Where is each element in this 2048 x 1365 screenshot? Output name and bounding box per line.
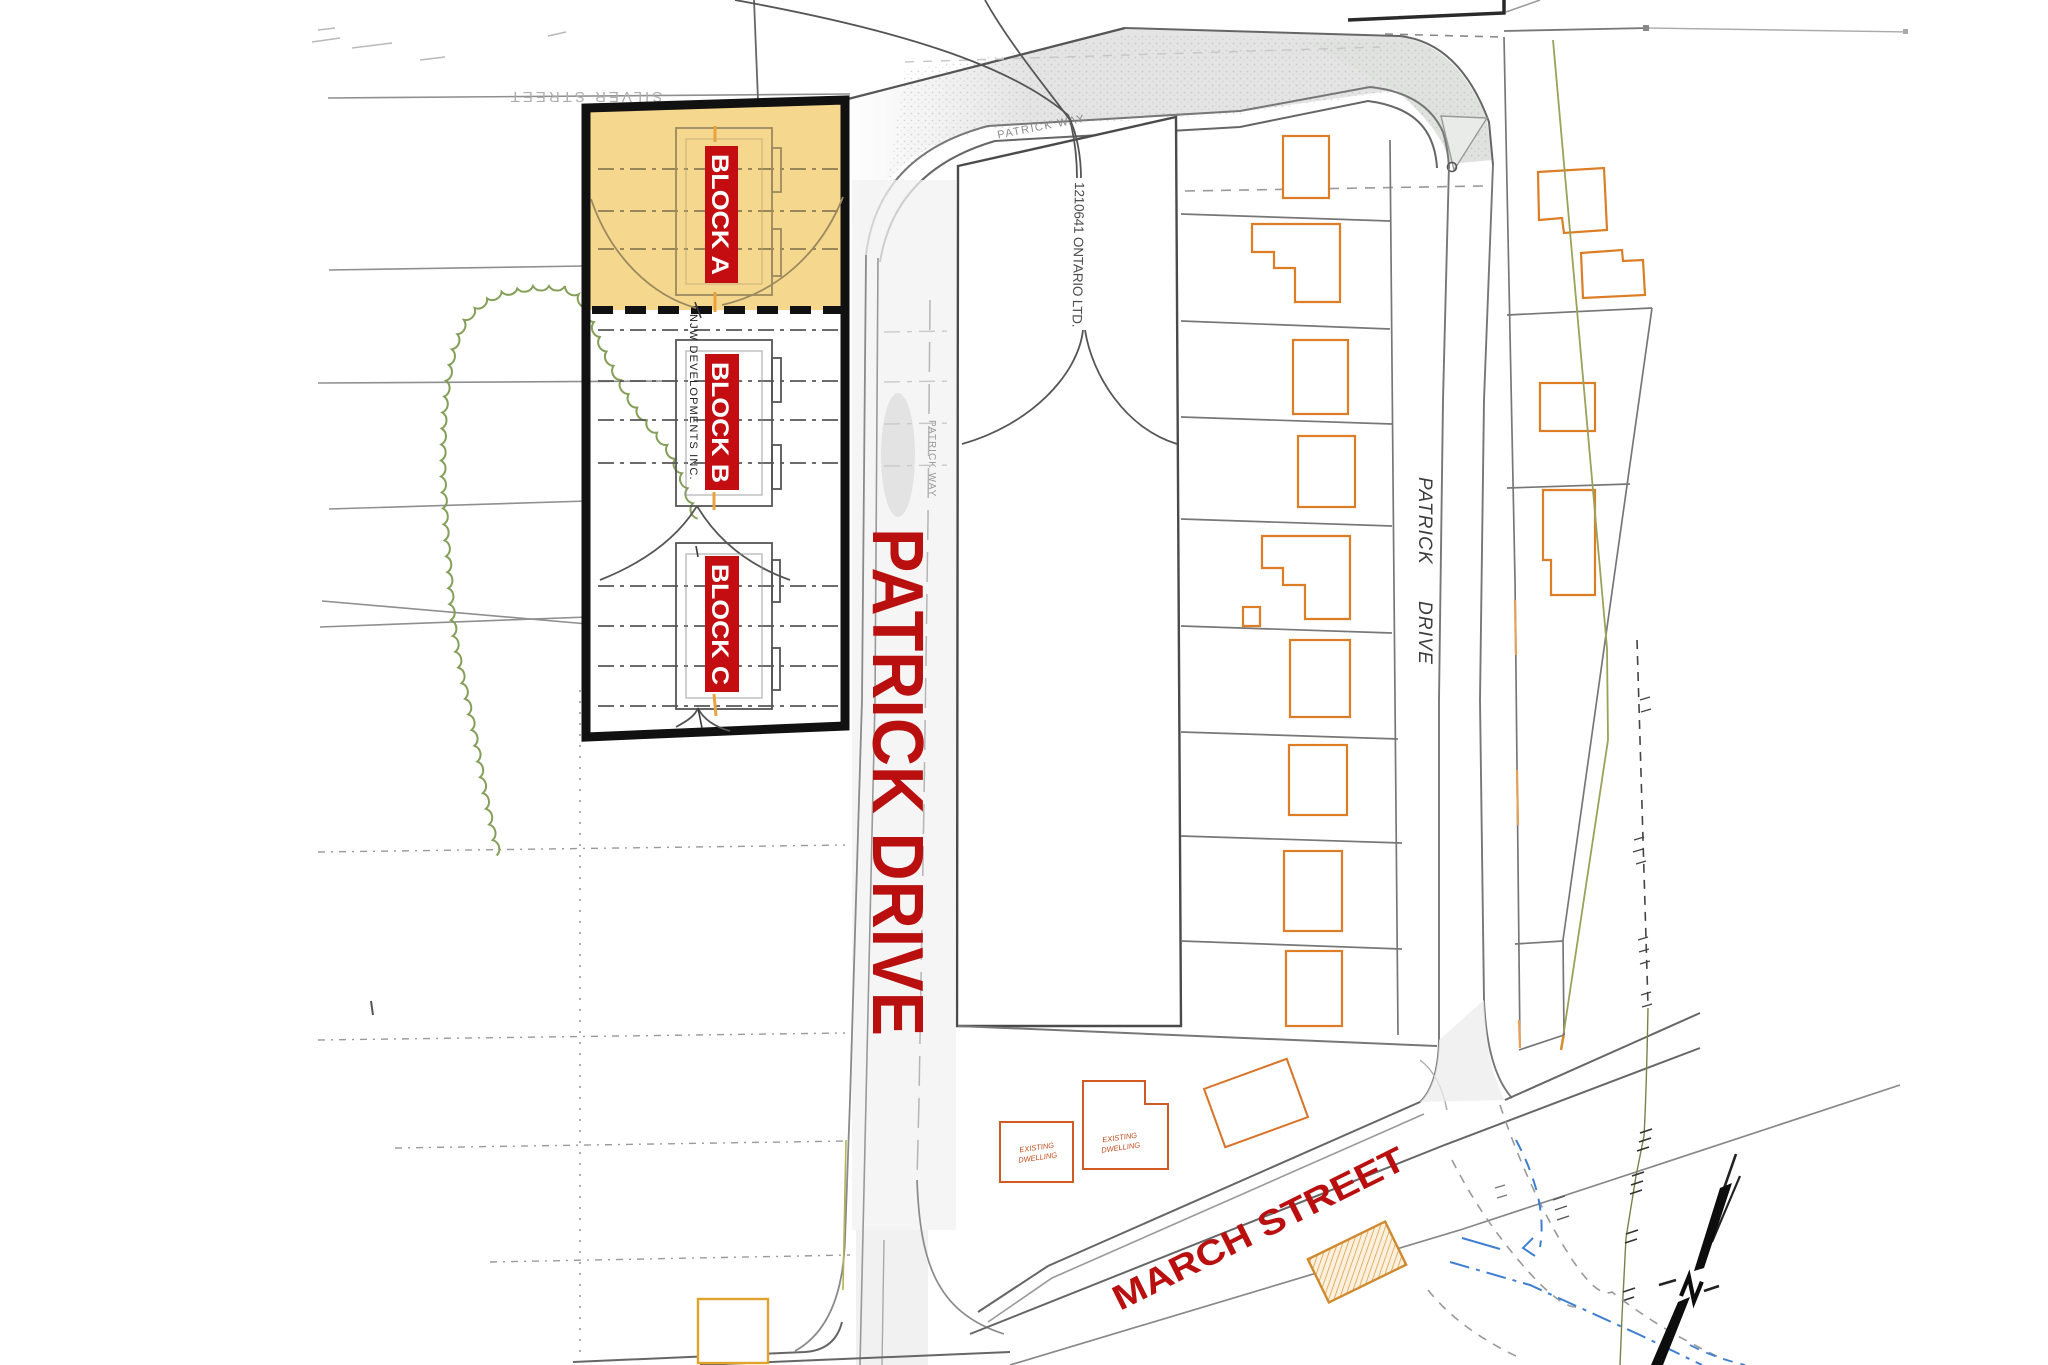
- svg-text:PATRICK WAY: PATRICK WAY: [926, 420, 937, 497]
- svg-text:DRIVE: DRIVE: [1414, 601, 1435, 665]
- svg-text:PATRICK DRIVE: PATRICK DRIVE: [857, 528, 937, 1036]
- svg-text:PATRICK: PATRICK: [1414, 477, 1435, 565]
- svg-text:1210641 ONTARIO LTD.: 1210641 ONTARIO LTD.: [1069, 182, 1087, 328]
- svg-text:NJW DEVELOPMENTS INC.: NJW DEVELOPMENTS INC.: [687, 314, 699, 480]
- svg-text:BLOCK C: BLOCK C: [706, 564, 733, 685]
- svg-text:BLOCK B: BLOCK B: [706, 362, 733, 483]
- svg-text:BLOCK A: BLOCK A: [706, 154, 733, 275]
